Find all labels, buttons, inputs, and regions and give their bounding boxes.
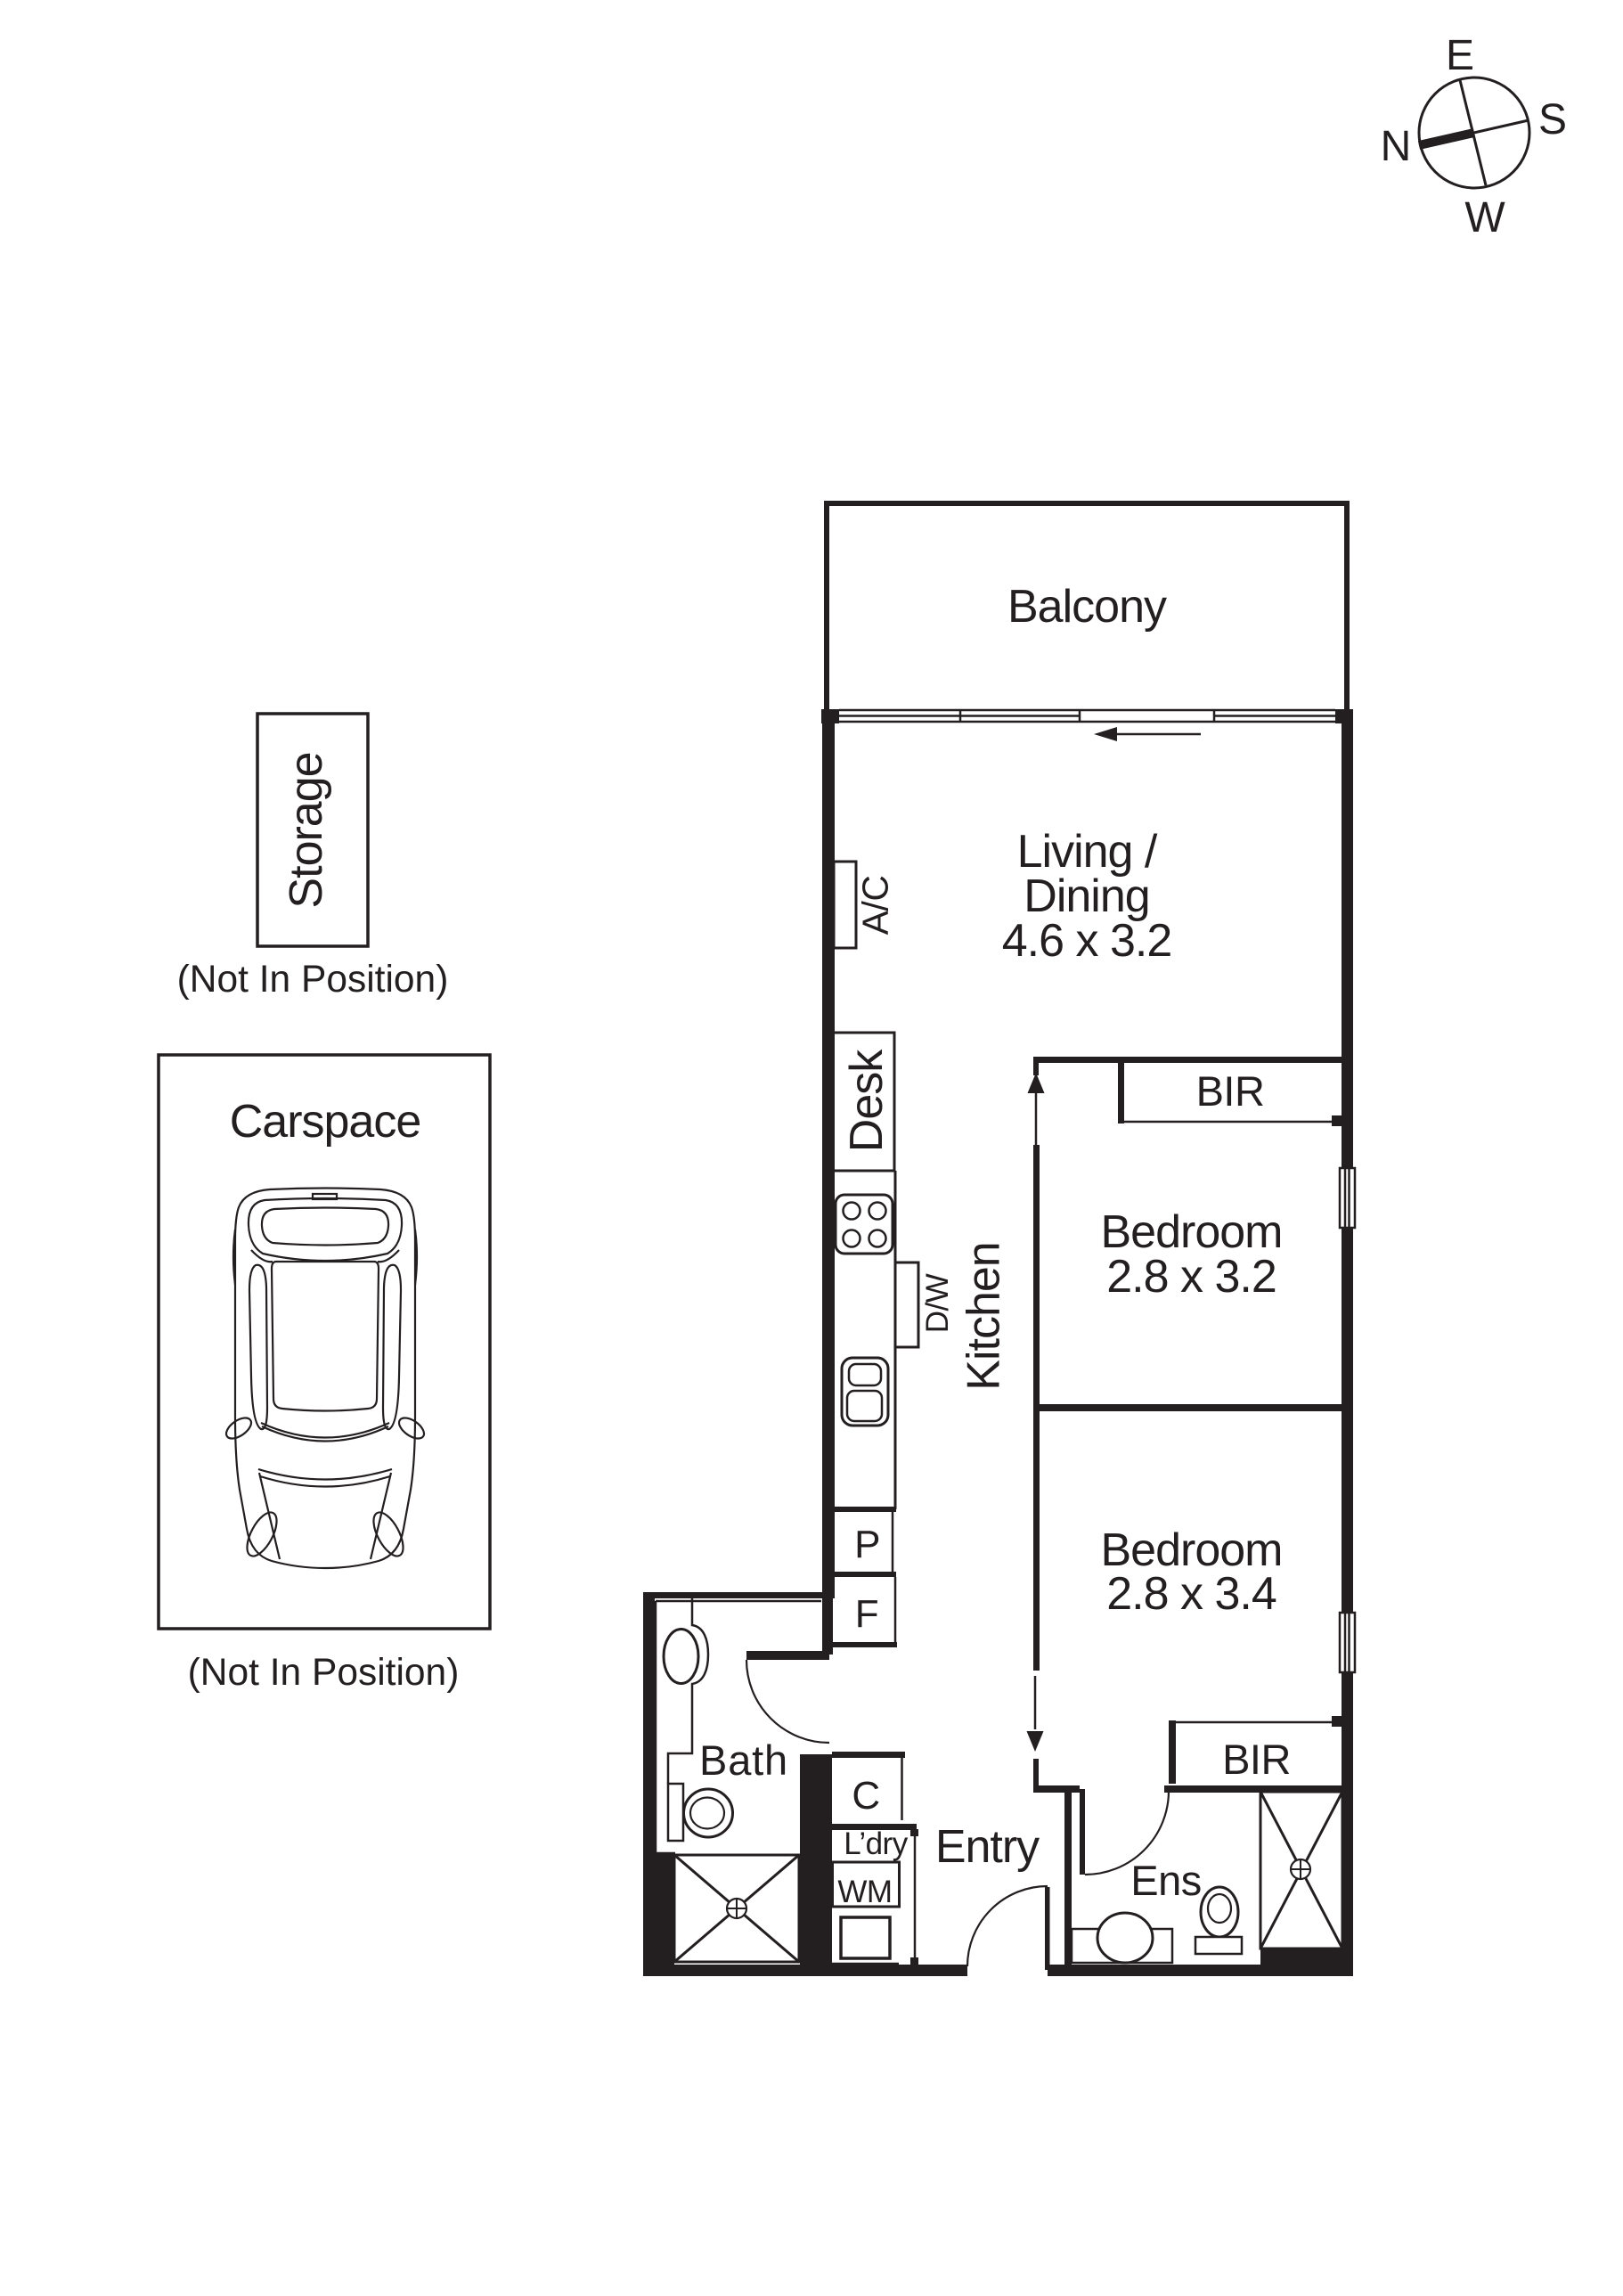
svg-text:C: C — [852, 1774, 879, 1818]
svg-text:F: F — [855, 1592, 878, 1636]
svg-text:Carspace: Carspace — [230, 1096, 421, 1148]
svg-text:Storage: Storage — [281, 752, 332, 908]
svg-text:4.6 x 3.2: 4.6 x 3.2 — [1002, 915, 1171, 967]
svg-text:E: E — [1446, 32, 1474, 79]
svg-text:Bath: Bath — [699, 1736, 788, 1784]
svg-text:N: N — [1381, 123, 1412, 170]
svg-text:2.8 x 3.2: 2.8 x 3.2 — [1106, 1251, 1276, 1303]
svg-text:WM: WM — [837, 1875, 892, 1909]
svg-text:(Not In Position): (Not In Position) — [177, 959, 449, 1001]
svg-text:Ens: Ens — [1130, 1857, 1202, 1904]
svg-text:(Not In Position): (Not In Position) — [188, 1652, 460, 1694]
svg-text:S: S — [1538, 96, 1567, 143]
svg-text:Balcony: Balcony — [1007, 581, 1167, 633]
svg-text:Kitchen: Kitchen — [958, 1242, 1010, 1390]
svg-text:L’dry: L’dry — [844, 1826, 908, 1861]
svg-text:BIR: BIR — [1222, 1736, 1291, 1783]
svg-text:W: W — [1464, 194, 1505, 241]
svg-text:Entry: Entry — [935, 1821, 1040, 1873]
svg-text:P: P — [854, 1523, 880, 1566]
svg-text:Desk: Desk — [841, 1049, 893, 1152]
svg-text:A/C: A/C — [855, 876, 896, 936]
svg-text:BIR: BIR — [1196, 1067, 1265, 1115]
svg-text:2.8 x 3.4: 2.8 x 3.4 — [1106, 1568, 1276, 1620]
svg-text:D/W: D/W — [920, 1273, 955, 1333]
